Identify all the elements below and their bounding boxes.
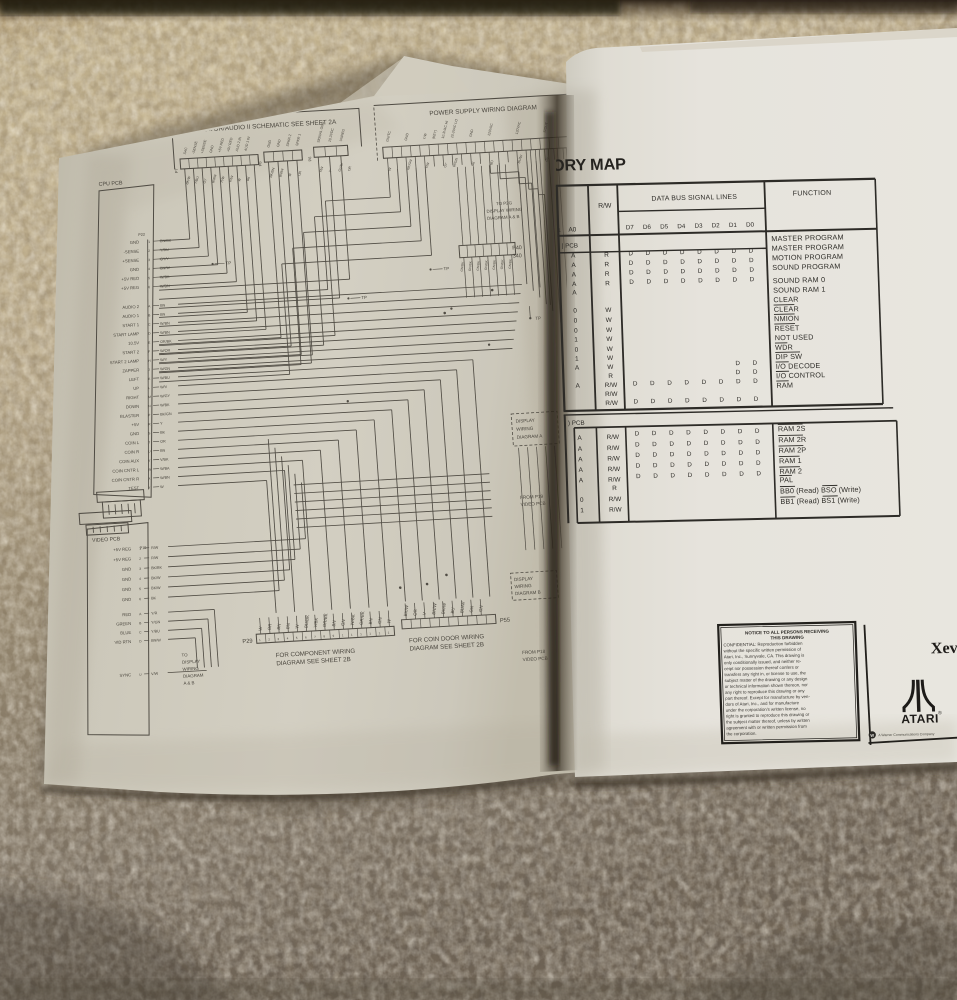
svg-text:WDR: WDR — [775, 343, 793, 352]
svg-text:D: D — [738, 439, 743, 446]
svg-text:THIS DRAWING: THIS DRAWING — [770, 635, 804, 641]
svg-text:R/W: R/W — [151, 556, 159, 560]
svg-text:R/W: R/W — [608, 476, 622, 483]
svg-text:D: D — [739, 471, 744, 478]
svg-text:D: D — [684, 379, 689, 386]
svg-text:D: D — [722, 461, 727, 468]
svg-text:BN/BK: BN/BK — [160, 239, 172, 244]
svg-text:BK: BK — [151, 596, 157, 600]
svg-text:WIRING: WIRING — [516, 426, 534, 432]
svg-text:D: D — [722, 471, 727, 478]
svg-text:R: R — [604, 261, 609, 268]
svg-text:Y/GN: Y/GN — [151, 620, 161, 625]
svg-text:D: D — [653, 473, 658, 480]
svg-text:TP: TP — [225, 260, 231, 265]
svg-text:V/W: V/W — [151, 672, 159, 676]
svg-text:D: D — [704, 450, 709, 457]
svg-text:D: D — [686, 429, 691, 436]
svg-text:COIN L: COIN L — [125, 440, 140, 446]
svg-text:BK/W: BK/W — [151, 586, 161, 591]
svg-text:D: D — [663, 249, 668, 256]
svg-text:D3: D3 — [694, 223, 703, 230]
svg-text:D: D — [698, 277, 703, 284]
svg-text:D: D — [668, 398, 673, 405]
svg-text:ORY MAP: ORY MAP — [552, 155, 627, 175]
svg-text:D: D — [705, 471, 710, 478]
svg-text:ZAPPER: ZAPPER — [122, 367, 139, 373]
svg-text:BK/W: BK/W — [151, 576, 161, 581]
svg-text:0: 0 — [580, 497, 584, 504]
svg-text:R/W: R/W — [605, 391, 619, 398]
svg-text:D: D — [653, 462, 658, 469]
svg-text:D: D — [646, 259, 651, 266]
svg-text:OR: OR — [160, 439, 166, 443]
svg-text:D: D — [697, 258, 702, 265]
svg-text:D: D — [755, 428, 760, 435]
svg-text:BK: BK — [160, 430, 166, 434]
svg-text:BN/W: BN/W — [151, 638, 161, 643]
svg-text:GND: GND — [122, 566, 132, 572]
svg-text:W/BA: W/BA — [160, 466, 170, 471]
svg-text:R/W: R/W — [605, 382, 619, 389]
svg-text:D: D — [753, 360, 758, 367]
svg-text:0: 0 — [574, 328, 578, 335]
svg-text:W: W — [870, 733, 874, 738]
svg-text:D: D — [646, 278, 651, 285]
svg-text:D: D — [737, 396, 742, 403]
svg-text:RESET: RESET — [774, 323, 800, 333]
svg-text:D: D — [681, 268, 686, 275]
svg-text:BN/W: BN/W — [160, 266, 170, 271]
svg-text:D: D — [715, 267, 720, 274]
svg-text:GND: GND — [122, 587, 132, 593]
svg-text:R: R — [605, 280, 610, 287]
svg-text:D: D — [685, 397, 690, 404]
svg-text:D: D — [670, 451, 675, 458]
svg-text:R/W: R/W — [606, 434, 620, 441]
svg-text:the corporation.: the corporation. — [726, 731, 756, 737]
svg-text:1: 1 — [558, 228, 561, 234]
svg-text:D: D — [738, 450, 743, 457]
svg-text:R: R — [608, 373, 613, 380]
svg-text:CLEAR: CLEAR — [773, 295, 798, 305]
svg-text:W/OR: W/OR — [160, 349, 171, 354]
svg-text:RED: RED — [122, 612, 131, 618]
svg-text:D: D — [670, 472, 675, 479]
svg-text:D: D — [738, 428, 743, 435]
svg-text:START 1: START 1 — [122, 322, 140, 328]
svg-text:D: D — [721, 440, 726, 447]
svg-text:1: 1 — [574, 337, 578, 344]
svg-text:D: D — [749, 267, 754, 274]
svg-text:DIP SW: DIP SW — [775, 352, 802, 362]
svg-text:W/GY: W/GY — [160, 394, 171, 399]
svg-text:A0: A0 — [568, 226, 577, 233]
svg-text:LEFT: LEFT — [129, 376, 140, 382]
svg-text:T: T — [148, 440, 150, 444]
svg-text:| PCB: | PCB — [562, 242, 578, 249]
svg-text:D: D — [704, 440, 709, 447]
svg-text:D: D — [645, 250, 650, 257]
svg-text:BN: BN — [160, 313, 166, 317]
svg-text:R: R — [604, 252, 609, 259]
svg-text:F: F — [148, 350, 150, 354]
svg-text:BN: BN — [160, 303, 166, 307]
svg-text:D6: D6 — [643, 224, 652, 231]
svg-text:D1: D1 — [729, 222, 738, 229]
svg-text:D: D — [667, 380, 672, 387]
svg-text:D: D — [702, 379, 707, 386]
svg-text:) PCB: ) PCB — [568, 420, 585, 427]
svg-text:BK/BK: BK/BK — [151, 566, 163, 571]
svg-text:SOUND RAM 1: SOUND RAM 1 — [773, 285, 826, 295]
svg-text:GND: GND — [130, 239, 140, 245]
svg-text:D: D — [687, 451, 692, 458]
svg-text:+5V REG: +5V REG — [113, 546, 131, 552]
svg-text:D: D — [663, 268, 668, 275]
svg-text:D: D — [629, 269, 634, 276]
svg-text:PAL: PAL — [780, 475, 794, 484]
svg-text:1: 1 — [575, 356, 579, 363]
svg-text:CLEAR: CLEAR — [774, 304, 799, 314]
svg-text:Xevi: Xevi — [930, 640, 957, 658]
svg-text:+5V REG: +5V REG — [113, 556, 131, 562]
svg-text:D: D — [650, 380, 655, 387]
svg-text:COIN R: COIN R — [124, 449, 139, 455]
svg-text:W/BK: W/BK — [160, 275, 170, 280]
svg-text:GND: GND — [122, 577, 132, 583]
svg-text:D: D — [735, 360, 740, 367]
svg-text:D: D — [629, 260, 634, 267]
svg-text:D: D — [739, 460, 744, 467]
svg-text:R/W: R/W — [607, 445, 621, 452]
svg-text:D4: D4 — [677, 223, 686, 230]
svg-text:D: D — [628, 250, 633, 257]
svg-text:A & B: A & B — [183, 680, 194, 686]
svg-text:R/W: R/W — [598, 203, 612, 210]
svg-text:D: D — [633, 380, 638, 387]
svg-text:R/W: R/W — [607, 455, 621, 462]
svg-text:D: D — [736, 369, 741, 376]
svg-text:TP: TP — [443, 266, 449, 271]
svg-text:D: D — [704, 461, 709, 468]
svg-text:D: D — [756, 470, 761, 477]
svg-text:0: 0 — [573, 308, 577, 315]
svg-text:D: D — [635, 452, 640, 459]
svg-text:M: M — [148, 395, 151, 399]
svg-text:W/GN: W/GN — [160, 367, 171, 372]
svg-text:UP: UP — [133, 386, 139, 391]
svg-text:D: D — [749, 257, 754, 264]
svg-text:AUDIO 1: AUDIO 1 — [122, 313, 140, 319]
svg-text:®: ® — [938, 709, 942, 716]
svg-text:NOT USED: NOT USED — [775, 332, 814, 342]
svg-text:Y/BU: Y/BU — [160, 248, 169, 253]
svg-text:RAM 2R: RAM 2R — [778, 435, 806, 445]
svg-text:D5: D5 — [660, 223, 669, 230]
svg-text:-SENSE: -SENSE — [123, 249, 139, 255]
svg-text:D: D — [703, 429, 708, 436]
svg-text:D: D — [652, 430, 657, 437]
svg-text:W/V: W/V — [160, 385, 168, 389]
svg-text:RAM 2P: RAM 2P — [779, 445, 807, 455]
svg-text:D: D — [680, 249, 685, 256]
svg-text:FUNCTION: FUNCTION — [793, 190, 832, 198]
svg-text:D: D — [753, 378, 758, 385]
svg-text:GY/Y: GY/Y — [160, 257, 170, 262]
svg-text:340: 340 — [513, 253, 522, 260]
svg-text:W/BN: W/BN — [160, 330, 170, 335]
svg-text:Y/R: Y/R — [151, 611, 158, 615]
svg-text:+5V RED: +5V RED — [121, 276, 139, 282]
svg-text:RAM 1: RAM 1 — [779, 456, 802, 465]
svg-text:R/W: R/W — [151, 546, 159, 550]
svg-text:D: D — [687, 461, 692, 468]
svg-text:D: D — [651, 398, 656, 405]
svg-text:D: D — [680, 259, 685, 266]
svg-text:W/Y: W/Y — [160, 358, 168, 362]
svg-text:D: D — [736, 378, 741, 385]
svg-text:D: D — [686, 440, 691, 447]
svg-text:R/W: R/W — [609, 496, 623, 503]
svg-text:D: D — [697, 249, 702, 256]
svg-text:I/O DECODE: I/O DECODE — [776, 361, 821, 371]
svg-text:D: D — [633, 398, 638, 405]
svg-text:D: D — [663, 259, 668, 266]
svg-text:OR/BK: OR/BK — [160, 339, 172, 344]
svg-text:D: D — [702, 397, 707, 404]
svg-text:W/BN: W/BN — [160, 284, 170, 289]
svg-text:P40: P40 — [512, 245, 522, 252]
svg-text:D: D — [719, 378, 724, 385]
svg-text:ATARI: ATARI — [901, 711, 939, 726]
svg-text:D: D — [652, 441, 657, 448]
svg-text:P55: P55 — [500, 618, 511, 625]
svg-text:P29: P29 — [242, 639, 253, 646]
svg-text:D: D — [636, 473, 641, 480]
svg-text:R: R — [605, 271, 610, 278]
svg-text:D: D — [664, 278, 669, 285]
svg-text:V/BK: V/BK — [160, 457, 169, 462]
svg-text:D: D — [635, 430, 640, 437]
svg-text:BLUE: BLUE — [120, 630, 131, 636]
svg-text:BK/GN: BK/GN — [160, 412, 172, 417]
svg-text:RAM: RAM — [776, 381, 793, 390]
svg-text:WIRING: WIRING — [514, 583, 532, 589]
svg-text:GREEN: GREEN — [116, 621, 131, 627]
svg-text:D: D — [749, 248, 754, 255]
svg-text:D: D — [698, 268, 703, 275]
svg-text:RIGHT: RIGHT — [126, 395, 140, 401]
svg-text:D: D — [646, 269, 651, 276]
svg-text:D0: D0 — [746, 222, 755, 229]
svg-text:W/BU: W/BU — [160, 376, 170, 381]
svg-text:START 2: START 2 — [122, 349, 140, 355]
svg-text:D: D — [670, 462, 675, 469]
svg-text:D: D — [756, 449, 761, 456]
svg-text:R: R — [612, 485, 617, 492]
svg-text:D: D — [652, 452, 657, 459]
svg-text:R/W: R/W — [609, 506, 623, 513]
svg-text:D: D — [754, 396, 759, 403]
svg-text:D: D — [753, 369, 758, 376]
svg-text:D: D — [715, 277, 720, 284]
svg-text:GND: GND — [122, 597, 132, 603]
svg-text:+5V REG: +5V REG — [121, 285, 139, 291]
svg-text:+5V: +5V — [131, 422, 139, 427]
svg-text:TO P2G: TO P2G — [496, 200, 513, 206]
svg-text:D: D — [688, 472, 693, 479]
svg-text:W/BN: W/BN — [160, 475, 170, 480]
svg-text:SYNC: SYNC — [119, 672, 131, 678]
svg-text:D: D — [715, 258, 720, 265]
svg-text:D: D — [721, 450, 726, 457]
svg-text:D: D — [636, 462, 641, 469]
svg-text:D: D — [629, 279, 634, 286]
svg-text:D: D — [669, 430, 674, 437]
svg-text:WIRING: WIRING — [182, 666, 199, 672]
svg-text:D: D — [732, 257, 737, 264]
svg-text:10.5V: 10.5V — [128, 340, 139, 346]
svg-text:W/BK: W/BK — [160, 403, 170, 408]
svg-text:Y/BU: Y/BU — [151, 629, 160, 634]
svg-text:R/W: R/W — [605, 400, 619, 407]
svg-text:AUDIO 2: AUDIO 2 — [122, 304, 140, 310]
svg-text:SOUND PROGRAM: SOUND PROGRAM — [772, 261, 841, 271]
svg-text:D: D — [750, 276, 755, 283]
svg-text:0: 0 — [574, 318, 578, 325]
svg-text:GND: GND — [130, 267, 140, 273]
svg-text:BN: BN — [160, 449, 166, 453]
svg-text:D: D — [755, 439, 760, 446]
svg-text:D: D — [756, 460, 761, 467]
svg-text:D: D — [719, 397, 724, 404]
svg-text:TP: TP — [361, 295, 367, 300]
svg-text:DISPLAY: DISPLAY — [182, 659, 201, 665]
svg-text:D: D — [635, 441, 640, 448]
svg-text:R/W: R/W — [608, 466, 622, 473]
svg-text:VID RTN: VID RTN — [114, 639, 131, 645]
svg-text:TO: TO — [181, 652, 188, 657]
svg-text:1: 1 — [580, 507, 584, 514]
svg-text:P22: P22 — [138, 233, 145, 237]
svg-text:D: D — [732, 267, 737, 274]
svg-text:D: D — [731, 248, 736, 255]
svg-text:D: D — [681, 278, 686, 285]
svg-text:0: 0 — [575, 347, 579, 354]
svg-text:D: D — [669, 441, 674, 448]
svg-text:DOWN: DOWN — [126, 404, 140, 410]
svg-text:NMION: NMION — [774, 314, 799, 324]
svg-text:+SENSE: +SENSE — [122, 258, 139, 264]
svg-text:RAM 2S: RAM 2S — [778, 424, 806, 434]
svg-text:D7: D7 — [626, 224, 635, 231]
svg-text:D2: D2 — [712, 222, 721, 229]
svg-text:D: D — [732, 276, 737, 283]
svg-text:W/BN: W/BN — [160, 321, 170, 326]
svg-text:SOUND RAM 0: SOUND RAM 0 — [773, 275, 826, 285]
svg-text:GND: GND — [130, 431, 140, 437]
svg-text:D: D — [714, 248, 719, 255]
svg-text:D: D — [720, 429, 725, 436]
